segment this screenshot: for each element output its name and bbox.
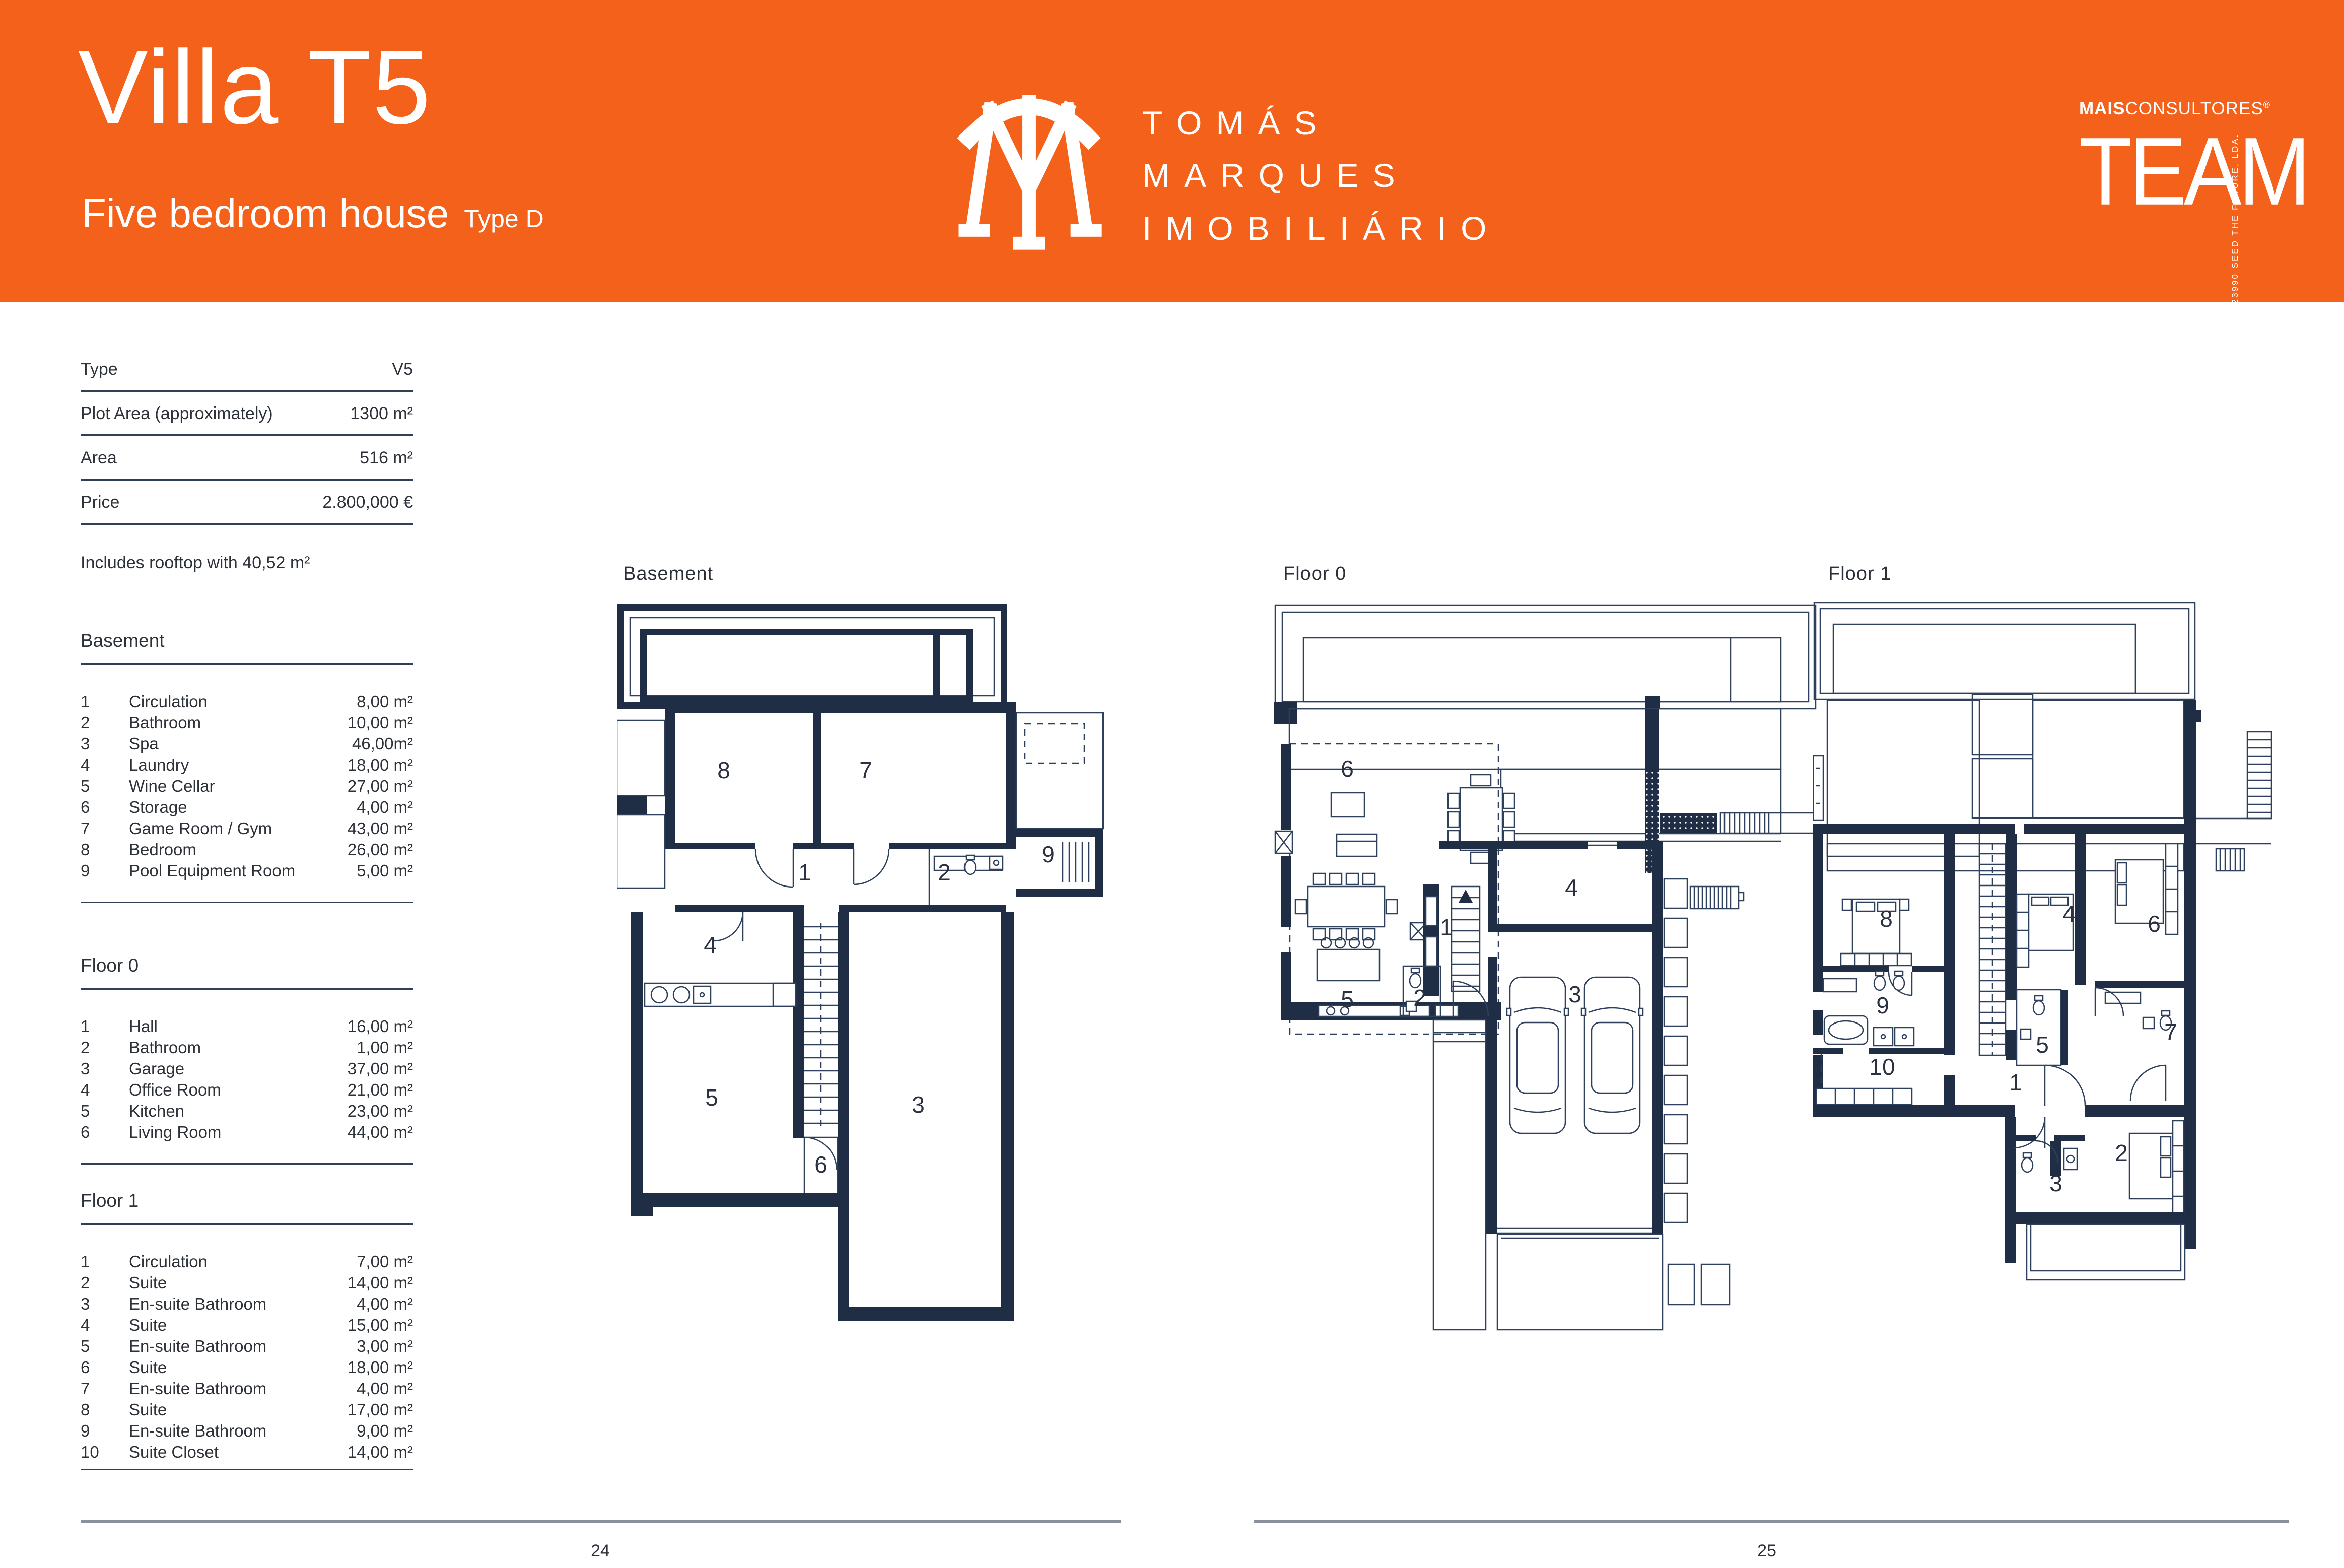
room-area-cell: 4,00 m² [357, 1293, 413, 1315]
room-row: 8Suite17,00 m² [81, 1399, 413, 1420]
room-number-label: 3 [2049, 1170, 2062, 1196]
room-number-label: 10 [1869, 1054, 1895, 1080]
floorplan-basement-drawing: 879124563 [617, 604, 1106, 1325]
room-number-label: 6 [1341, 756, 1354, 782]
room-area-cell: 46,00m² [352, 733, 413, 755]
room-row: 1Hall16,00 m² [81, 1016, 413, 1037]
section-end-divider [81, 902, 413, 903]
room-name-cell: Garage [129, 1058, 348, 1079]
room-name-cell: Spa [129, 733, 352, 755]
brand-name: TOMÁS MARQUES IMOBILIÁRIO [1142, 97, 1500, 257]
room-area-cell: 3,00 m² [357, 1336, 413, 1357]
room-number-cell: 6 [81, 797, 129, 818]
room-number-cell: 9 [81, 1420, 129, 1442]
room-area-cell: 23,00 m² [348, 1101, 413, 1122]
room-number-cell: 4 [81, 1315, 129, 1336]
brochure-page: Villa T5 Five bedroom house Type D [0, 0, 2344, 1568]
room-area-cell: 4,00 m² [357, 1378, 413, 1399]
room-name-cell: Circulation [129, 1251, 357, 1272]
room-list: 1Circulation8,00 m²2Bathroom10,00 m²3Spa… [81, 691, 413, 881]
page-number-left: 24 [591, 1541, 610, 1561]
brand-line-1: TOMÁS [1142, 97, 1500, 149]
room-row: 6Suite18,00 m² [81, 1357, 413, 1378]
room-number-cell: 5 [81, 1101, 129, 1122]
brand-line-2: MARQUES [1142, 149, 1500, 201]
section-title: Floor 0 [81, 955, 413, 977]
floorplan-floor0: 641523 [1274, 604, 1818, 1335]
room-number-label: 6 [814, 1151, 828, 1178]
room-list: 1Circulation7,00 m²2Suite14,00 m²3En-sui… [81, 1251, 413, 1463]
spec-row-type: Type V5 [81, 348, 413, 392]
room-row: 6Living Room44,00 m² [81, 1122, 413, 1143]
room-area-cell: 18,00 m² [348, 1357, 413, 1378]
rooftop-note: Includes rooftop with 40,52 m² [81, 553, 310, 573]
room-name-cell: En-suite Bathroom [129, 1420, 357, 1442]
room-number-cell: 5 [81, 1336, 129, 1357]
page-subtitle: Five bedroom house [82, 190, 449, 237]
room-row: 1Circulation8,00 m² [81, 691, 413, 712]
room-number-cell: 3 [81, 1058, 129, 1079]
room-name-cell: En-suite Bathroom [129, 1293, 357, 1315]
room-number-label: 9 [1042, 841, 1055, 867]
brand-logo: TOMÁS MARQUES IMOBILIÁRIO [951, 65, 1500, 257]
footer-rule-left [81, 1520, 1121, 1523]
room-area-cell: 15,00 m² [348, 1315, 413, 1336]
room-number-cell: 9 [81, 860, 129, 881]
room-number-label: 2 [938, 859, 951, 885]
spec-value: 1300 m² [350, 404, 413, 424]
room-name-cell: Office Room [129, 1079, 348, 1101]
room-number-label: 7 [859, 757, 872, 783]
plan-label-basement: Basement [623, 563, 713, 585]
room-name-cell: Bedroom [129, 839, 348, 860]
room-row: 6Storage4,00 m² [81, 797, 413, 818]
room-name-cell: Pool Equipment Room [129, 860, 357, 881]
room-area-cell: 14,00 m² [348, 1442, 413, 1463]
room-area-cell: 10,00 m² [348, 712, 413, 733]
spec-value: V5 [392, 360, 413, 379]
section-title: Basement [81, 630, 413, 652]
room-name-cell: Kitchen [129, 1101, 348, 1122]
floorplan-basement: 879124563 [617, 604, 1106, 1325]
section-floor0: Floor 0 1Hall16,00 m²2Bathroom1,00 m²3Ga… [81, 955, 413, 1165]
room-number-cell: 2 [81, 1037, 129, 1058]
room-name-cell: Suite [129, 1357, 348, 1378]
room-name-cell: Suite Closet [129, 1442, 348, 1463]
room-number-label: 7 [2164, 1019, 2177, 1045]
room-number-cell: 3 [81, 1293, 129, 1315]
room-area-cell: 14,00 m² [348, 1272, 413, 1293]
room-name-cell: Bathroom [129, 712, 348, 733]
room-row: 8Bedroom26,00 m² [81, 839, 413, 860]
page-subtitle-row: Five bedroom house Type D [82, 190, 544, 237]
room-area-cell: 26,00 m² [348, 839, 413, 860]
room-number-cell: 7 [81, 818, 129, 839]
room-number-label: 8 [717, 757, 730, 783]
room-number-label: 5 [705, 1084, 718, 1111]
room-number-cell: 5 [81, 776, 129, 797]
room-number-cell: 7 [81, 1378, 129, 1399]
room-name-cell: Bathroom [129, 1037, 357, 1058]
room-row: 1Circulation7,00 m² [81, 1251, 413, 1272]
room-row: 3Spa46,00m² [81, 733, 413, 755]
room-number-label: 1 [798, 859, 811, 885]
room-number-cell: 4 [81, 755, 129, 776]
room-number-cell: 1 [81, 1016, 129, 1037]
partner-ami-text: AMI: 23990 SEED THE FUTURE, LDA. [2230, 130, 2240, 331]
footer-rule-right [1254, 1520, 2289, 1523]
spec-row-area: Area 516 m² [81, 436, 413, 481]
room-area-cell: 4,00 m² [357, 797, 413, 818]
spec-row-plot-area: Plot Area (approximately) 1300 m² [81, 392, 413, 436]
room-row: 5En-suite Bathroom3,00 m² [81, 1336, 413, 1357]
section-basement: Basement 1Circulation8,00 m²2Bathroom10,… [81, 630, 413, 903]
spec-label: Type [81, 360, 118, 379]
room-row: 4Suite15,00 m² [81, 1315, 413, 1336]
room-number-cell: 1 [81, 691, 129, 712]
room-number-cell: 3 [81, 733, 129, 755]
page-number-right: 25 [1757, 1541, 1776, 1561]
floorplan-floor1-drawing: 84695710123 [1813, 602, 2302, 1282]
room-area-cell: 1,00 m² [357, 1037, 413, 1058]
room-area-cell: 16,00 m² [348, 1016, 413, 1037]
room-area-cell: 8,00 m² [357, 691, 413, 712]
type-tag: Type D [464, 204, 543, 233]
room-number-label: 3 [1568, 981, 1581, 1007]
room-number-cell: 2 [81, 1272, 129, 1293]
room-row: 3En-suite Bathroom4,00 m² [81, 1293, 413, 1315]
section-end-divider [81, 1469, 413, 1470]
registered-mark: ® [2263, 100, 2270, 110]
room-name-cell: Laundry [129, 755, 348, 776]
tm-monogram-icon [951, 65, 1107, 257]
room-name-cell: Hall [129, 1016, 348, 1037]
partner-logo-name: MAISCONSULTORES® [2079, 99, 2296, 119]
room-number-label: 1 [2009, 1069, 2022, 1096]
room-name-cell: Circulation [129, 691, 357, 712]
section-title: Floor 1 [81, 1190, 413, 1212]
room-area-cell: 7,00 m² [357, 1251, 413, 1272]
room-name-cell: Storage [129, 797, 357, 818]
room-name-cell: Suite [129, 1399, 348, 1420]
room-row: 4Office Room21,00 m² [81, 1079, 413, 1101]
page-title: Villa T5 [78, 35, 432, 140]
room-number-label: 5 [2036, 1032, 2049, 1058]
room-row: 7Game Room / Gym43,00 m² [81, 818, 413, 839]
room-number-label: 6 [2148, 911, 2161, 937]
room-number-cell: 2 [81, 712, 129, 733]
room-area-cell: 37,00 m² [348, 1058, 413, 1079]
room-row: 2Bathroom1,00 m² [81, 1037, 413, 1058]
spec-value: 2.800,000 € [322, 493, 413, 512]
spec-table: Type V5 Plot Area (approximately) 1300 m… [81, 348, 413, 525]
room-number-label: 8 [1880, 906, 1893, 932]
room-number-label: 4 [1565, 874, 1578, 901]
room-number-label: 4 [704, 932, 717, 958]
room-number-label: 5 [1341, 986, 1354, 1012]
room-row: 2Bathroom10,00 m² [81, 712, 413, 733]
room-row: 10Suite Closet14,00 m² [81, 1442, 413, 1463]
room-name-cell: Game Room / Gym [129, 818, 348, 839]
partner-team-wordmark: TEAM [2079, 126, 2296, 218]
header-band: Villa T5 Five bedroom house Type D [0, 0, 2344, 302]
room-row: 4Laundry18,00 m² [81, 755, 413, 776]
room-row: 9Pool Equipment Room5,00 m² [81, 860, 413, 881]
section-end-divider [81, 1163, 413, 1165]
room-number-cell: 8 [81, 839, 129, 860]
brand-line-3: IMOBILIÁRIO [1142, 202, 1500, 254]
spec-row-price: Price 2.800,000 € [81, 481, 413, 525]
room-row: 5Kitchen23,00 m² [81, 1101, 413, 1122]
room-number-cell: 8 [81, 1399, 129, 1420]
room-row: 5Wine Cellar27,00 m² [81, 776, 413, 797]
spec-label: Area [81, 448, 117, 468]
room-area-cell: 43,00 m² [348, 818, 413, 839]
room-area-cell: 18,00 m² [348, 755, 413, 776]
room-row: 3Garage37,00 m² [81, 1058, 413, 1079]
room-number-cell: 4 [81, 1079, 129, 1101]
room-number-label: 4 [2062, 901, 2076, 927]
room-number-cell: 1 [81, 1251, 129, 1272]
room-number-label: 9 [1876, 992, 1889, 1018]
floorplan-floor1: 84695710123 [1813, 602, 2302, 1282]
section-divider [81, 1223, 413, 1225]
partner-bold: MAIS [2079, 99, 2125, 118]
room-number-cell: 10 [81, 1442, 129, 1463]
room-number-cell: 6 [81, 1357, 129, 1378]
spec-value: 516 m² [360, 448, 413, 468]
section-divider [81, 663, 413, 665]
room-name-cell: Suite [129, 1315, 348, 1336]
room-name-cell: Suite [129, 1272, 348, 1293]
spec-label: Plot Area (approximately) [81, 404, 273, 424]
floorplan-floor0-drawing: 641523 [1274, 604, 1818, 1335]
room-row: 9En-suite Bathroom9,00 m² [81, 1420, 413, 1442]
room-list: 1Hall16,00 m²2Bathroom1,00 m²3Garage37,0… [81, 1016, 413, 1143]
room-number-label: 1 [1440, 914, 1453, 940]
room-area-cell: 44,00 m² [348, 1122, 413, 1143]
room-row: 2Suite14,00 m² [81, 1272, 413, 1293]
room-number-cell: 6 [81, 1122, 129, 1143]
partner-logo: MAISCONSULTORES® TEAM AMI: 23990 SEED TH… [2079, 99, 2296, 208]
room-number-label: 2 [2115, 1140, 2128, 1166]
room-area-cell: 27,00 m² [348, 776, 413, 797]
room-name-cell: Wine Cellar [129, 776, 348, 797]
room-row: 7En-suite Bathroom4,00 m² [81, 1378, 413, 1399]
plan-label-floor0: Floor 0 [1283, 563, 1346, 585]
spec-label: Price [81, 493, 119, 512]
room-name-cell: En-suite Bathroom [129, 1336, 357, 1357]
room-area-cell: 5,00 m² [357, 860, 413, 881]
section-floor1: Floor 1 1Circulation7,00 m²2Suite14,00 m… [81, 1190, 413, 1470]
section-divider [81, 988, 413, 990]
plan-label-floor1: Floor 1 [1828, 563, 1891, 585]
room-number-label: 2 [1413, 985, 1426, 1011]
room-name-cell: En-suite Bathroom [129, 1378, 357, 1399]
room-number-label: 3 [912, 1092, 925, 1118]
partner-rest: CONSULTORES [2125, 99, 2263, 118]
room-area-cell: 21,00 m² [348, 1079, 413, 1101]
room-name-cell: Living Room [129, 1122, 348, 1143]
room-area-cell: 9,00 m² [357, 1420, 413, 1442]
room-area-cell: 17,00 m² [348, 1399, 413, 1420]
